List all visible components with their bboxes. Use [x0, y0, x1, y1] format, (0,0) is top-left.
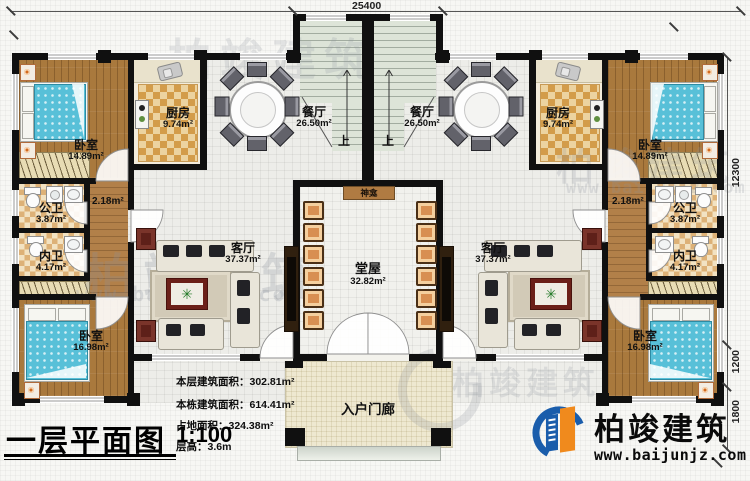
sofa-pillow — [546, 324, 561, 336]
hall-chair — [303, 267, 324, 286]
tv-cabinet — [284, 246, 299, 332]
dimension-right-mid: 1200 — [730, 350, 742, 373]
dining-chair — [215, 97, 230, 117]
sofa-pillow — [522, 324, 537, 336]
corridor-area-left: 2.18m² — [92, 196, 136, 207]
room-label-living-right: 客厅 37.37m² — [458, 242, 528, 266]
pillow — [58, 308, 86, 321]
sofa-pillow — [485, 308, 498, 324]
nightstand — [20, 64, 36, 81]
company-logo-text: 柏竣建筑 — [594, 404, 730, 449]
side-table — [582, 320, 602, 342]
company-website: www.baijunjz.com — [594, 446, 747, 464]
coffee-table: ✳ — [530, 278, 572, 310]
dimension-right-main: 12300 — [730, 158, 742, 187]
plant-icon: ✳ — [181, 286, 193, 303]
pillow — [704, 86, 716, 112]
title-underline — [4, 454, 176, 457]
sofa-pillow — [537, 245, 553, 257]
room-label-bedroom-tr: 卧室 14.89m² — [612, 139, 688, 163]
nightstand — [702, 142, 718, 159]
hall-chair — [303, 311, 324, 330]
room-label-living-left: 客厅 37.37m² — [208, 242, 278, 266]
pillow — [652, 308, 680, 321]
room-label-bedroom-bl: 卧室 16.98m² — [56, 330, 126, 354]
room-label-bedroom-br: 卧室 16.98m² — [610, 330, 680, 354]
stat-row: 占地面积：324.38m² — [176, 418, 273, 433]
nightstand — [24, 382, 40, 399]
room-label-bath-private-left: 内卫 4.17m² — [20, 250, 82, 274]
sink-icon — [655, 186, 674, 203]
nightstand — [698, 382, 714, 399]
dining-chair — [471, 62, 491, 77]
corridor-area-right: 2.18m² — [612, 196, 656, 207]
sofa-pillow — [190, 324, 205, 336]
hall-chair — [303, 223, 324, 242]
plant-icon: ✳ — [545, 286, 557, 303]
room-label-dining-right: 餐厅 26.50m² — [392, 106, 452, 130]
hall-chair — [303, 245, 324, 264]
pillow — [28, 308, 56, 321]
sofa-pillow — [166, 324, 181, 336]
room-label-porch: 入户门廊 — [320, 402, 416, 417]
stairs-up-label: 上 — [338, 132, 350, 149]
french-door-right — [368, 313, 409, 354]
shrine-cabinet: 神龛 — [343, 186, 395, 200]
hall-chair — [416, 267, 437, 286]
room-label-bedroom-tl: 卧室 14.89m² — [48, 139, 124, 163]
pillow — [682, 308, 710, 321]
french-door-left — [327, 313, 368, 354]
dimension-line-right — [727, 57, 728, 449]
company-logo-icon — [532, 400, 588, 462]
room-label-bath-public-right: 公卫 3.87m² — [654, 202, 716, 226]
sofa-pillow — [485, 280, 498, 296]
hall-chair — [416, 245, 437, 264]
bedroom-bl-door — [96, 297, 128, 329]
room-label-hall: 堂屋 32.82m² — [332, 262, 404, 287]
coffee-table: ✳ — [166, 278, 208, 310]
tv-cabinet — [439, 246, 454, 332]
room-label-kitchen-right: 厨房 9.74m² — [526, 107, 590, 131]
hall-chair — [416, 311, 437, 330]
nightstand — [20, 142, 36, 159]
dimension-right-low: 1800 — [730, 400, 742, 423]
pillow — [704, 113, 716, 139]
room-label-bath-public-left: 公卫 3.87m² — [20, 202, 82, 226]
hall-chair — [416, 289, 437, 308]
sink-icon — [64, 186, 83, 203]
stairs-up-label: 上 — [382, 132, 394, 149]
sofa-pillow — [163, 245, 179, 257]
side-table — [582, 228, 602, 250]
bedroom-br-door — [608, 297, 640, 329]
hall-chair — [416, 223, 437, 242]
dining-chair — [509, 97, 524, 117]
hall-chair — [303, 201, 324, 220]
dining-chair — [247, 62, 267, 77]
room-label-bath-private-right: 内卫 4.17m² — [654, 250, 716, 274]
stat-row: 层高：3.6m — [176, 439, 231, 454]
side-table — [136, 228, 156, 250]
nightstand — [702, 64, 718, 81]
side-table — [136, 320, 156, 342]
room-label-dining-left: 餐厅 26.50m² — [284, 106, 344, 130]
hall-chair — [416, 201, 437, 220]
dining-chair — [247, 136, 267, 151]
stat-row: 本层建筑面积：302.81m² — [176, 374, 294, 389]
sofa-pillow — [237, 280, 250, 296]
dimension-top-value: 25400 — [352, 0, 381, 12]
stove-icon — [590, 100, 604, 129]
pillow — [22, 86, 34, 112]
dining-chair — [471, 136, 491, 151]
stat-row: 本栋建筑面积：614.41m² — [176, 397, 294, 412]
hall-chair — [303, 289, 324, 308]
title-underline — [4, 459, 176, 460]
floor-plan-canvas: 柏竣建筑 柏竣建筑 www.baijunjz.com 柏竣建筑 www.baij… — [0, 0, 750, 481]
room-label-kitchen-left: 厨房 9.74m² — [146, 107, 210, 131]
pillow — [22, 113, 34, 139]
sofa-pillow — [237, 308, 250, 324]
sofa-pillow — [186, 245, 202, 257]
